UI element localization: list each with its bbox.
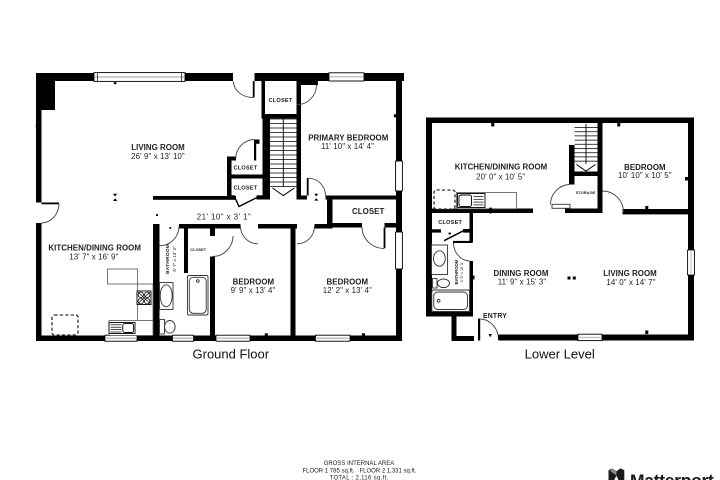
svg-text:TOTAL : 2,116 sq.ft.: TOTAL : 2,116 sq.ft. <box>330 476 389 480</box>
svg-text:FLOOR 1 785 sq.ft. FLOOR 2 1: FLOOR 1 785 sq.ft. FLOOR 2 1,331 sq.ft. <box>302 468 416 474</box>
svg-text:CLOSET: CLOSET <box>234 166 258 172</box>
svg-text:4' 9" x 10' 5": 4' 9" x 10' 5" <box>460 261 464 282</box>
svg-text:6' 7" x 13' 4": 6' 7" x 13' 4" <box>172 246 177 272</box>
svg-text:10' 10" x 10' 5": 10' 10" x 10' 5" <box>618 171 672 180</box>
svg-text:11' 10" x 14' 4": 11' 10" x 14' 4" <box>321 142 374 151</box>
svg-text:21' 10" x 3' 1": 21' 10" x 3' 1" <box>197 212 251 221</box>
svg-text:CLOSET: CLOSET <box>190 247 206 252</box>
svg-text:ENTRY: ENTRY <box>483 313 507 320</box>
svg-text:Ground Floor: Ground Floor <box>193 346 270 361</box>
svg-text:STORAGE: STORAGE <box>576 190 596 195</box>
svg-text:KITCHEN/DINING ROOM: KITCHEN/DINING ROOM <box>455 162 548 171</box>
svg-text:Lower Level: Lower Level <box>525 346 595 361</box>
svg-text:14' 0" x 14' 7": 14' 0" x 14' 7" <box>606 278 655 287</box>
svg-text:11' 9" x 15' 3": 11' 9" x 15' 3" <box>498 277 547 286</box>
svg-text:LIVING ROOM: LIVING ROOM <box>603 269 657 278</box>
svg-text:Matterport: Matterport <box>630 471 714 480</box>
svg-text:CLOSET: CLOSET <box>352 207 384 216</box>
svg-text:12' 2" x 13' 4": 12' 2" x 13' 4" <box>323 286 372 295</box>
svg-text:CLOSET: CLOSET <box>269 98 293 104</box>
svg-text:KITCHEN/DINING ROOM: KITCHEN/DINING ROOM <box>48 243 141 252</box>
svg-text:20' 0" x 10' 5": 20' 0" x 10' 5" <box>476 172 525 181</box>
svg-text:9' 9" x 13' 4": 9' 9" x 13' 4" <box>231 286 276 295</box>
svg-text:LIVING ROOM: LIVING ROOM <box>131 143 185 152</box>
svg-text:CLOSET: CLOSET <box>438 220 462 226</box>
svg-text:13' 7" x 16' 9": 13' 7" x 16' 9" <box>69 252 118 261</box>
svg-text:BATHROOM: BATHROOM <box>165 244 171 274</box>
svg-text:CLOSET: CLOSET <box>233 186 257 192</box>
svg-text:GROSS INTERNAL AREA: GROSS INTERNAL AREA <box>324 461 394 467</box>
svg-text:26' 9" x 13' 10": 26' 9" x 13' 10" <box>131 152 185 161</box>
svg-text:BATHROOM: BATHROOM <box>454 259 459 284</box>
